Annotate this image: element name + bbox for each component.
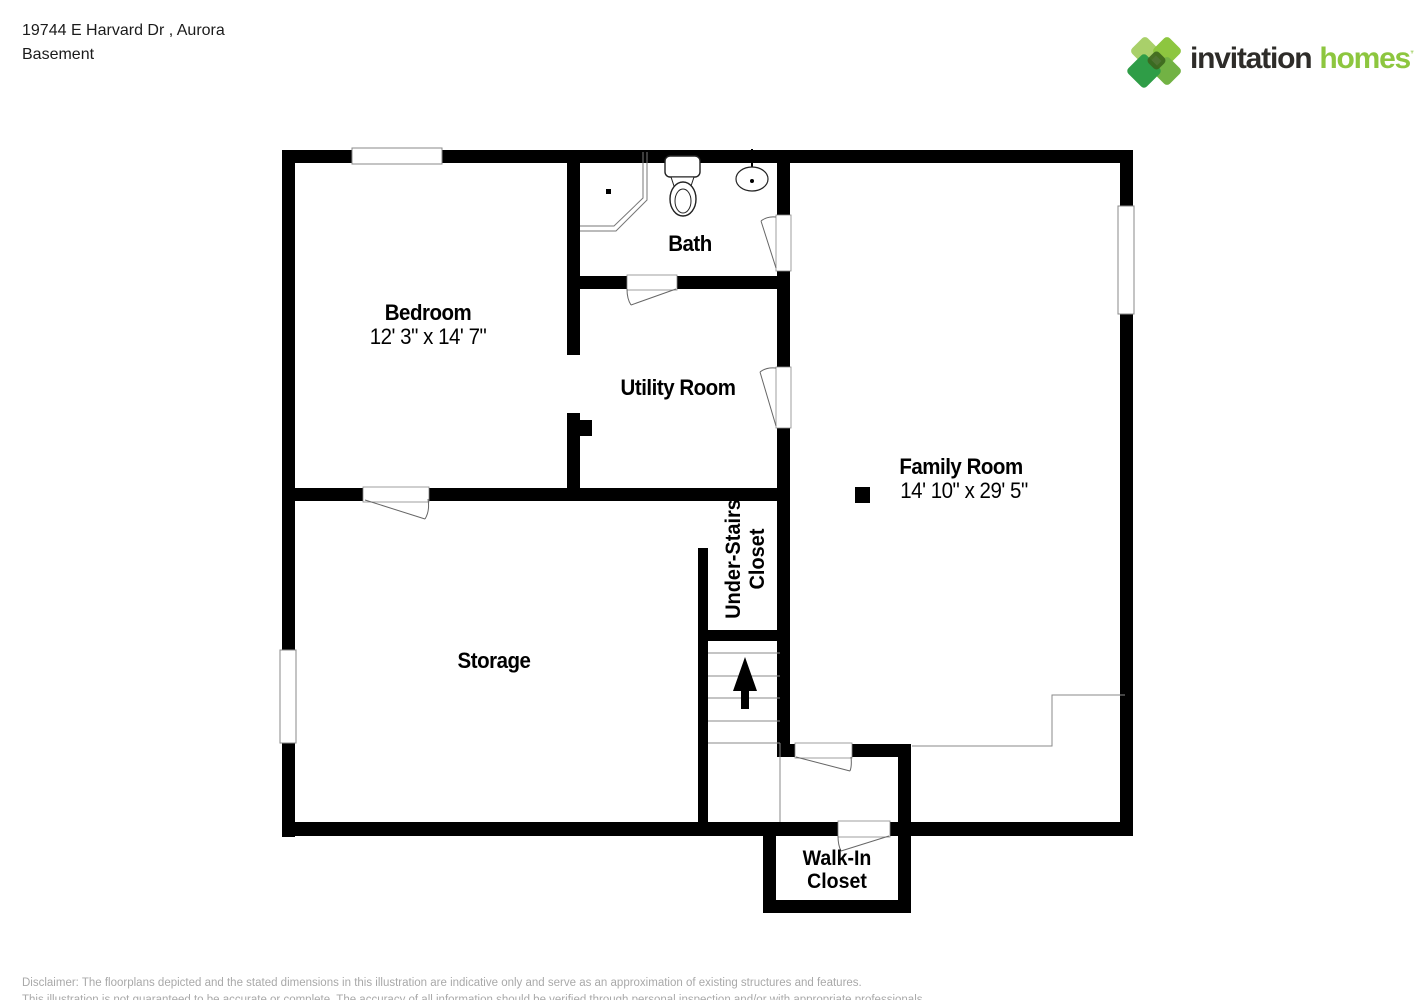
floorplan-canvas (0, 0, 1414, 1000)
door-gap-family-bath (776, 215, 791, 271)
wall-storage-top (282, 488, 788, 501)
door-swing-family-bath (761, 217, 776, 268)
room-label-understairs-closet: Under-Stairs Closet (722, 499, 770, 619)
door-swing-bath (627, 289, 676, 305)
door-swing-vestibule (796, 757, 851, 771)
wall-walkin-bottom (763, 900, 911, 913)
sink-icon (736, 149, 769, 191)
wall-notch (580, 420, 592, 436)
stairs-up-arrow-icon (733, 657, 757, 709)
door-gap-walkin (838, 821, 890, 837)
wall-bottom (282, 822, 1133, 836)
faucet-handle (763, 154, 769, 160)
door-gap-bath (627, 275, 677, 290)
door-swing-family-utility (760, 368, 776, 426)
disclaimer-line2: This illustration is not guaranteed to b… (22, 994, 926, 1000)
toilet-icon (665, 156, 700, 216)
room-label-storage: Storage (458, 648, 531, 674)
wall-understairs-left (698, 548, 708, 822)
toilet-tank (665, 156, 700, 177)
disclaimer-line1: Disclaimer: The floorplans depicted and … (22, 977, 862, 989)
shower-icon (580, 152, 647, 231)
window-storage (280, 650, 296, 743)
stairs (708, 653, 780, 822)
walkin-line2: Closet (803, 870, 872, 893)
door-gap-vestibule (795, 743, 852, 758)
room-label-family: Family Room (899, 454, 1022, 480)
soffit-outline (912, 695, 1125, 746)
sink-drain (750, 179, 754, 183)
room-label-bath: Bath (668, 231, 712, 257)
door-gap-storage (363, 487, 429, 502)
room-label-walkin-closet: Walk-In Closet (803, 847, 872, 893)
opening-bedroom (566, 355, 581, 413)
understairs-line2: Closet (746, 499, 770, 619)
door-gap-family-utility (776, 367, 791, 428)
window-bedroom (352, 148, 442, 164)
wall-understairs-bottom (698, 630, 788, 641)
shower-drain (606, 189, 611, 194)
room-label-utility: Utility Room (621, 375, 736, 401)
column-marker (855, 487, 870, 503)
room-dims-family: 14' 10" x 29' 5" (900, 478, 1028, 504)
room-label-bedroom: Bedroom (385, 300, 472, 326)
faucet-handle (736, 154, 742, 160)
walkin-line1: Walk-In (803, 847, 872, 870)
floorplan-page: 19744 E Harvard Dr , Aurora Basement inv… (0, 0, 1414, 1000)
understairs-line1: Under-Stairs (722, 499, 746, 619)
wall-vestibule-right (898, 744, 911, 913)
window-family (1118, 206, 1134, 314)
shower-edge-outer (580, 152, 647, 231)
wall-bath-bottom (567, 276, 790, 289)
shower-edge-inner (580, 152, 643, 226)
wall-bedroom-right-upper (567, 150, 580, 355)
wall-bedroom-right-lower (567, 413, 580, 501)
toilet-bowl (670, 182, 696, 216)
room-dims-bedroom: 12' 3" x 14' 7" (370, 324, 487, 350)
